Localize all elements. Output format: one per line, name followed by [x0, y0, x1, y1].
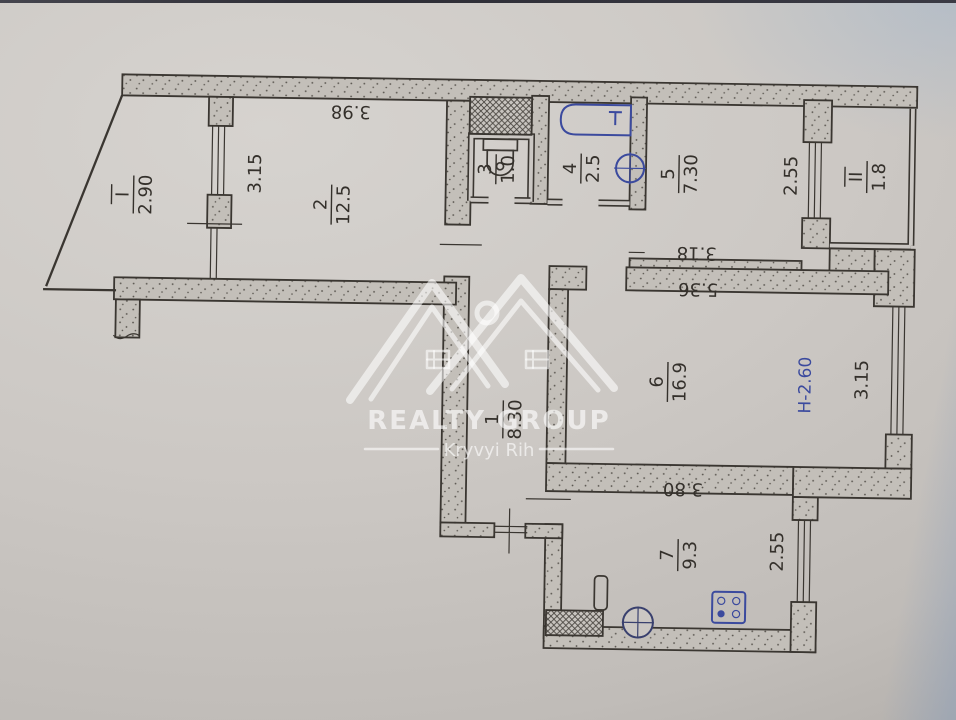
svg-text:3.80: 3.80 [663, 478, 703, 500]
room-number: 5 [658, 168, 679, 180]
svg-text:3.15: 3.15 [245, 153, 267, 193]
stove-icon [712, 592, 745, 624]
room-area: 2.5 [583, 154, 604, 183]
svg-text:H-2.60: H-2.60 [795, 357, 816, 414]
floor-plan-drawing: I 2.90 2 12.5 3 1.0 4 2.5 5 7.30 II [0, 0, 956, 720]
svg-text:3.15: 3.15 [851, 360, 873, 400]
window [791, 520, 817, 602]
logo-window-icon [526, 351, 548, 368]
floor-plan-photo: I 2.90 2 12.5 3 1.0 4 2.5 5 7.30 II [0, 0, 956, 720]
room-label-bathroom: 4 2.5 [560, 153, 604, 184]
wall-segment [790, 602, 816, 652]
room-area: 12.5 [333, 185, 355, 225]
room-area: 1.8 [869, 163, 890, 192]
dim-5.36: 5.36 [678, 278, 718, 300]
kitchen-stub-wall [594, 576, 608, 610]
dim-3.18: 3.18 [677, 242, 717, 264]
room-number: 3 [475, 163, 496, 175]
room-number: 7 [657, 549, 678, 561]
wall-segment [114, 277, 456, 304]
wall-segment [115, 299, 140, 337]
wall-segment [803, 100, 832, 142]
room-area: 2.90 [135, 175, 157, 215]
dim-3.15-room2: 3.15 [245, 153, 267, 193]
dim-3.15-living: 3.15 [851, 360, 873, 400]
svg-text:5.36: 5.36 [678, 278, 718, 300]
room-label-kitchen: 7 9.3 [657, 539, 701, 572]
dim-3.80: 3.80 [663, 478, 703, 500]
room-label-room-5: 5 7.30 [658, 154, 703, 195]
room-area: 7.30 [681, 154, 703, 194]
watermark-brand: REALTY GROUP [367, 406, 610, 436]
room-label-living-room: 6 16.9 [646, 362, 691, 403]
vent-shaft [470, 97, 533, 135]
watermark-city: Kryvyi Rih [444, 440, 535, 461]
bathtub-icon [561, 104, 631, 135]
wall-segment [209, 97, 233, 126]
window [802, 142, 831, 218]
wall-segment [440, 522, 494, 537]
wall-segment [629, 97, 647, 209]
room-label-room-2: 2 12.5 [310, 184, 355, 225]
svg-text:3.18: 3.18 [677, 242, 717, 264]
room-number: I [113, 192, 134, 198]
room-area: 16.9 [669, 362, 691, 402]
balcony-door [206, 228, 231, 279]
room-area: 9.3 [680, 541, 701, 570]
dim-2.55-room5: 2.55 [781, 156, 803, 196]
wall-segment [793, 497, 818, 520]
room-number: 4 [560, 163, 581, 175]
wall-segment [549, 266, 586, 290]
svg-text:3.98: 3.98 [331, 101, 371, 123]
room-number: II [846, 171, 867, 182]
vent-shaft [546, 610, 603, 636]
svg-text:2.55: 2.55 [767, 531, 789, 571]
wall-segment [793, 467, 911, 499]
room-label-balcony-2: II 1.8 [845, 161, 890, 194]
dim-2.55-kitchen: 2.55 [767, 531, 789, 571]
window [208, 126, 233, 195]
watermark: REALTY GROUP Kryvyi Rih [350, 278, 614, 461]
room-area: 1.0 [498, 155, 519, 184]
room-number: 2 [310, 199, 331, 211]
dim-3.98: 3.98 [331, 101, 371, 123]
wall-segment [626, 267, 888, 294]
wall-segment [207, 195, 232, 228]
room-label-balcony-1: I 2.90 [111, 174, 157, 215]
svg-text:2.55: 2.55 [781, 156, 803, 196]
window [886, 306, 914, 434]
door-openings [440, 206, 645, 555]
wall-segment [525, 524, 562, 539]
wall-segment [885, 434, 912, 468]
entrance-door [494, 508, 528, 554]
room-number: 6 [647, 376, 668, 388]
dim-ceiling-height: H-2.60 [795, 357, 816, 414]
wall-segment [802, 218, 830, 248]
